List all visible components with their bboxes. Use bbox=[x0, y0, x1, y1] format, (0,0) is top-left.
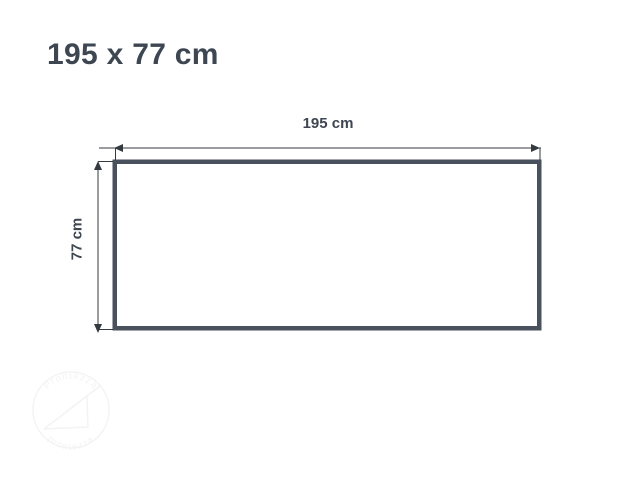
watermark-arc-text-bottom: prontezza bbox=[45, 434, 96, 453]
arrow-up-icon bbox=[94, 161, 102, 170]
svg-text:Prontezza: Prontezza bbox=[42, 371, 100, 392]
watermark-arc-text-top: Prontezza bbox=[42, 371, 100, 392]
arrow-right-icon bbox=[531, 144, 540, 152]
watermark-triangle-logo-icon bbox=[44, 386, 100, 429]
watermark-stamp: Prontezza prontezza bbox=[33, 371, 109, 453]
dimension-drawing: Prontezza prontezza bbox=[0, 0, 639, 479]
svg-text:prontezza: prontezza bbox=[45, 434, 96, 453]
arrow-down-icon bbox=[94, 324, 102, 333]
width-dimension-label: 195 cm bbox=[115, 115, 541, 132]
height-dimension-label: 77 cm bbox=[69, 218, 86, 261]
panel-rectangle bbox=[115, 162, 540, 329]
dimension-diagram-page: 195 x 77 cm Prontezza prontezza bbox=[0, 0, 639, 479]
